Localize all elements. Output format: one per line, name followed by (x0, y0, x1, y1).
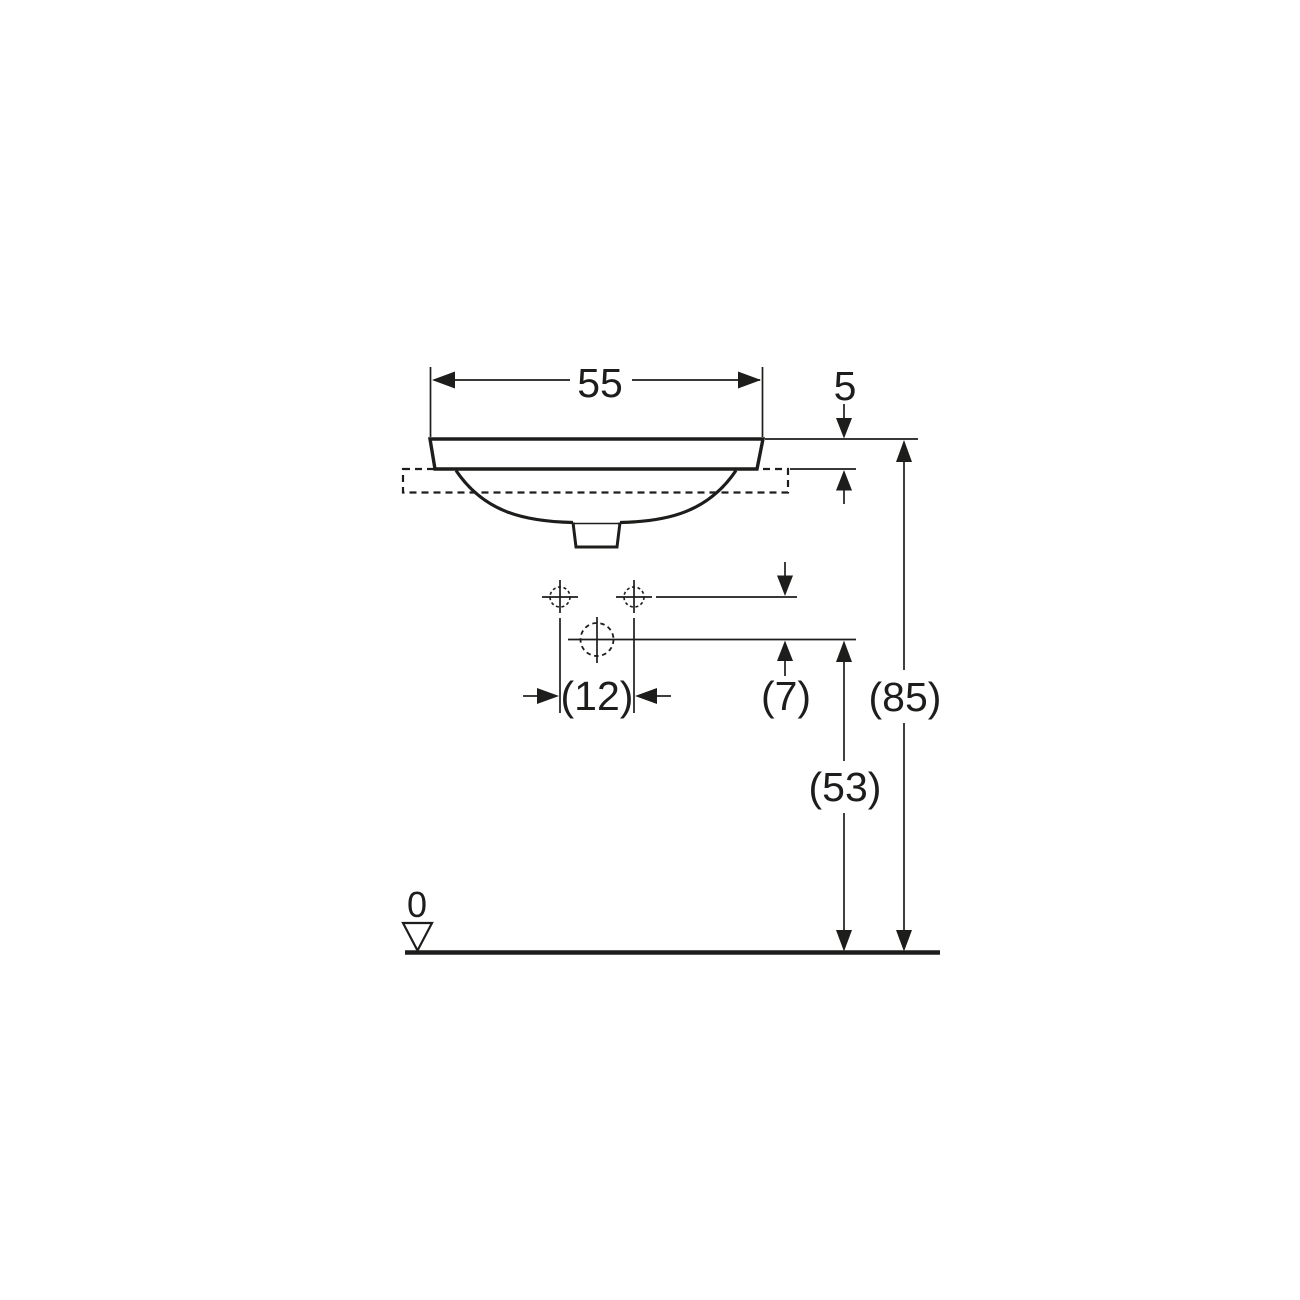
arrowhead-up (896, 440, 912, 462)
bowl-curve-left (456, 471, 573, 523)
arrowhead-down (777, 576, 793, 597)
datum-label: 0 (407, 884, 427, 925)
arrowhead-left-pointing (635, 688, 657, 704)
floor-datum: 0 (403, 884, 940, 953)
dim-label-rim-height: 5 (834, 363, 857, 409)
washbasin-dimension-diagram: 55 5 (0, 0, 1300, 1300)
dim-tap-outlet-offset: (7) (761, 562, 811, 719)
basin-rim (430, 439, 763, 469)
dim-label-offset: (7) (761, 673, 811, 719)
dim-rim-floor-height: (85) (869, 440, 942, 952)
tap-hole-right (616, 580, 652, 613)
drain-outlet (573, 523, 620, 548)
dim-label-outlet-height: (53) (809, 764, 882, 810)
dim-overall-width: 55 (431, 360, 763, 437)
arrowhead-down (836, 418, 852, 439)
dim-label-tap-spacing: (12) (561, 673, 634, 719)
bowl-curve-right (620, 471, 736, 523)
arrowhead-right (738, 372, 761, 389)
arrowhead-right-pointing (537, 688, 559, 704)
datum-triangle-icon (403, 923, 432, 951)
technical-drawing-canvas: 55 5 (0, 0, 1300, 1300)
dim-label-width: 55 (577, 360, 623, 406)
arrowhead-up (836, 470, 852, 491)
arrowhead-down (896, 930, 912, 952)
dim-label-rim-floor-height: (85) (869, 674, 942, 720)
arrowhead-up (836, 641, 852, 663)
arrowhead-up (777, 641, 793, 662)
tap-hole-left (542, 580, 578, 613)
arrowhead-down (836, 930, 852, 952)
arrowhead-left (432, 372, 455, 389)
